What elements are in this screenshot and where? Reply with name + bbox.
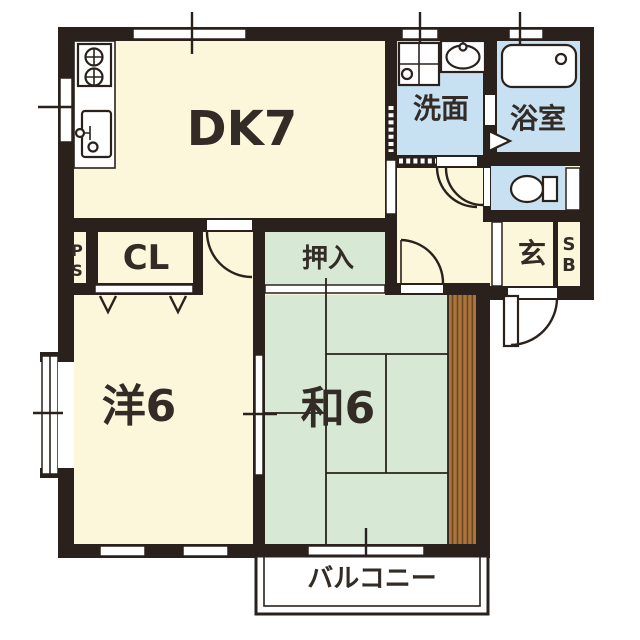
closet-label: CL bbox=[123, 238, 170, 278]
dk-label: DK7 bbox=[187, 101, 297, 157]
entrance-step bbox=[492, 222, 502, 286]
washroom-label: 洗面 bbox=[413, 92, 469, 125]
toilet-icon bbox=[511, 176, 557, 202]
dk-to-hall-opening bbox=[386, 160, 396, 214]
kitchen-side-window bbox=[60, 78, 72, 142]
entrance-label: 玄 bbox=[518, 237, 546, 270]
shoe-box-label-s: S bbox=[563, 234, 576, 255]
closet-opening bbox=[95, 285, 193, 293]
japanese-room-label: 和6 bbox=[301, 383, 376, 434]
shoe-box-label-b: B bbox=[562, 255, 576, 276]
western-room-window-left bbox=[100, 546, 145, 556]
oshiire-label: 押入 bbox=[302, 244, 354, 274]
bathroom-door-opening bbox=[485, 95, 495, 125]
western-room-window-right bbox=[183, 546, 228, 556]
dk-to-western-door-opening bbox=[207, 220, 252, 230]
entrance-door-leaf bbox=[504, 296, 518, 346]
pipe-shaft-label-s: S bbox=[71, 261, 83, 280]
washing-machine-icon bbox=[399, 43, 439, 85]
toilet-side-recess bbox=[566, 168, 580, 210]
bathroom-label: 浴室 bbox=[510, 102, 566, 135]
floor-plan: バルコニー DK7 洗面 浴室 CL 押入 玄 S B P S 洋6 和6 bbox=[0, 0, 640, 640]
floor-plan-drawing: バルコニー DK7 洗面 浴室 CL 押入 玄 S B P S 洋6 和6 bbox=[0, 0, 640, 640]
balcony-label: バルコニー bbox=[307, 564, 436, 594]
wash-basin-icon bbox=[441, 38, 485, 72]
bathtub-icon bbox=[502, 45, 576, 87]
oshiire-fusuma bbox=[265, 285, 385, 293]
kitchen-sink-icon bbox=[76, 111, 111, 157]
washroom-door-opening bbox=[437, 157, 477, 166]
toilet-door-opening bbox=[484, 168, 490, 206]
bay-window-mouth bbox=[58, 362, 74, 468]
balcony: バルコニー bbox=[256, 556, 488, 614]
stove-icon bbox=[78, 44, 111, 86]
hall-to-japanese-door-opening bbox=[401, 285, 443, 293]
pipe-shaft-label-p: P bbox=[71, 241, 83, 260]
western-room-label: 洋6 bbox=[102, 381, 177, 432]
dk-top-window bbox=[133, 29, 246, 39]
bathroom-top-window bbox=[509, 29, 543, 39]
